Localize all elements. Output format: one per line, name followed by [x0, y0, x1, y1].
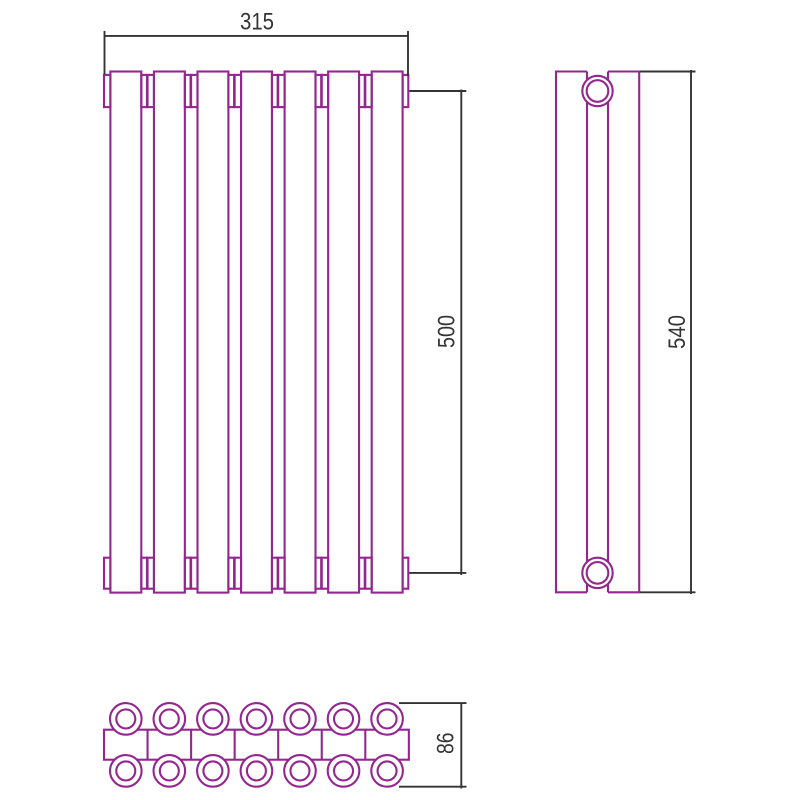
svg-text:315: 315 — [240, 9, 274, 36]
svg-text:500: 500 — [434, 315, 461, 348]
svg-text:86: 86 — [433, 732, 460, 754]
svg-text:540: 540 — [664, 315, 691, 349]
